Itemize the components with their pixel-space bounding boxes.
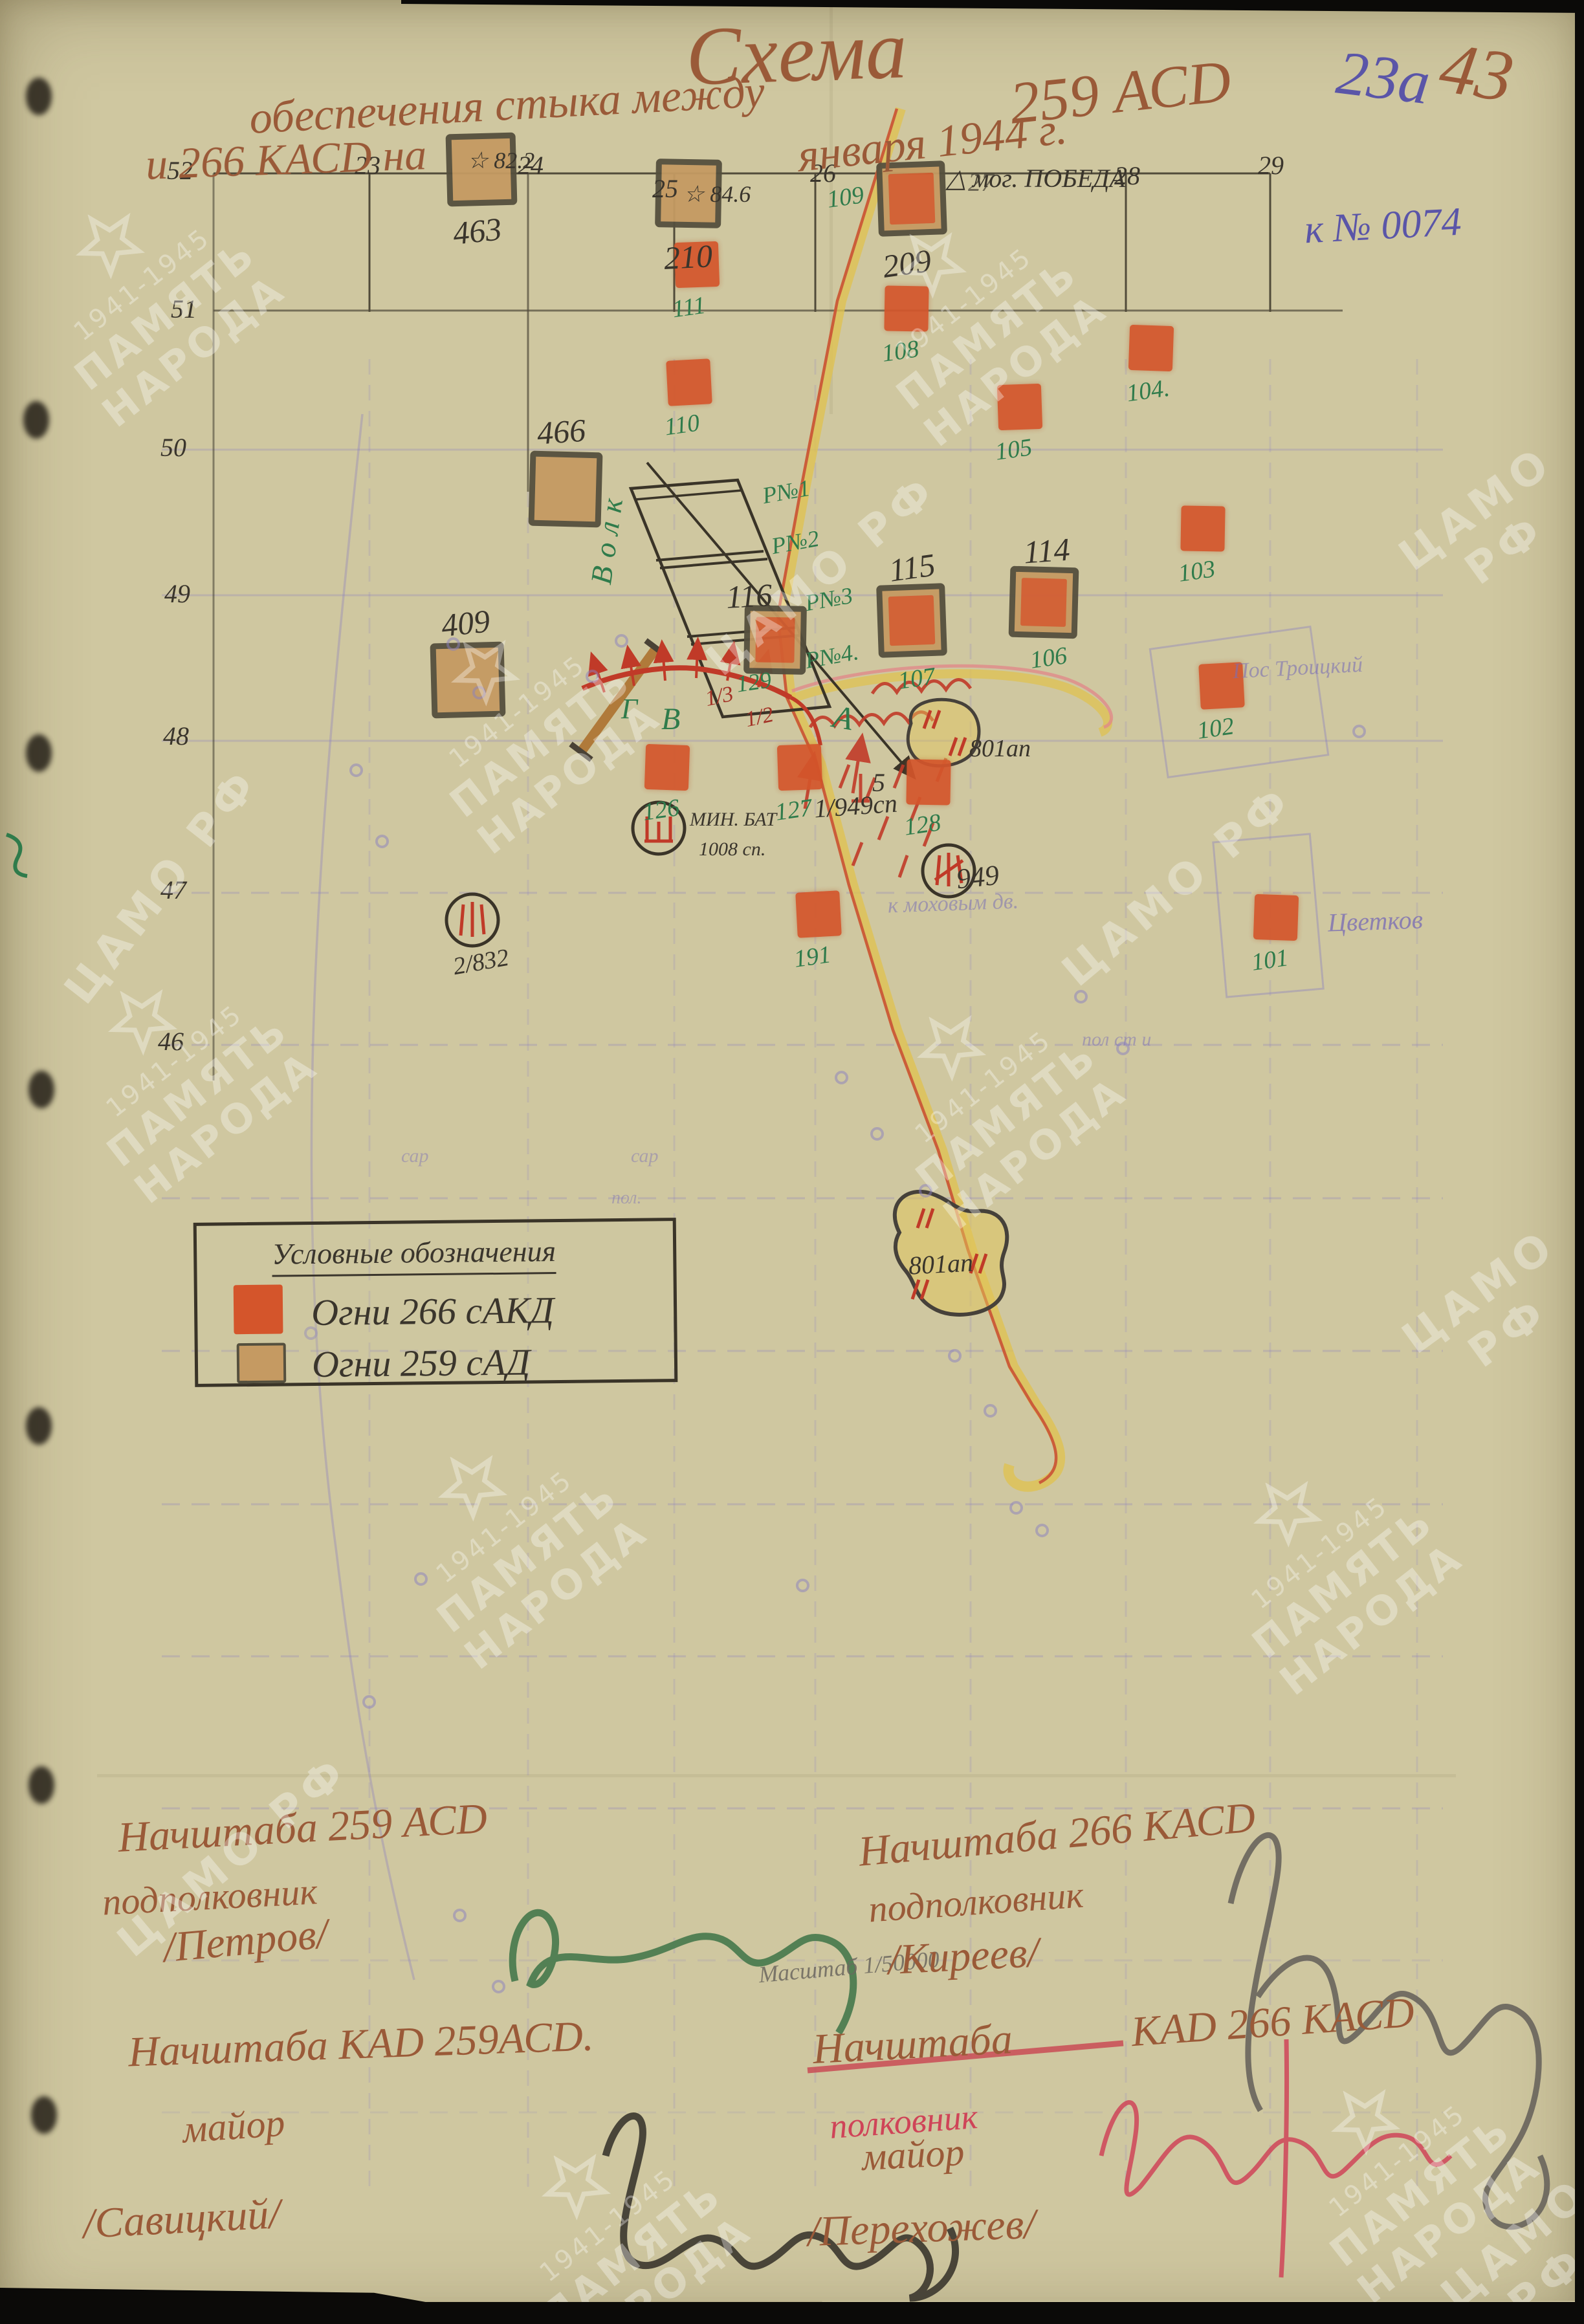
sig2-name: /Киреев/ <box>886 1928 1040 1985</box>
sig4-rank: майор <box>861 2130 965 2180</box>
fire-label-259: 409 <box>440 604 492 642</box>
binder-hole <box>28 1766 54 1804</box>
binder-hole <box>26 78 52 115</box>
pencil-dot <box>615 634 628 648</box>
pencil-dot <box>472 686 486 699</box>
map-label: 129 <box>735 668 773 696</box>
fire-label-259: 115 <box>887 548 938 586</box>
fire-marker-core <box>1020 578 1067 627</box>
legend-title: Условные обозначения <box>272 1234 556 1277</box>
signature-perekhozhev <box>1101 2039 1451 2277</box>
binder-hole <box>26 734 52 772</box>
map-label: сар <box>401 1146 429 1166</box>
fire-label-266: 104. <box>1125 376 1171 406</box>
grid-label: 46 <box>158 1029 184 1055</box>
pencil-dot <box>1116 1042 1130 1055</box>
file-reference: к № 0074 <box>1304 202 1462 250</box>
grid-label: 49 <box>164 581 190 607</box>
pencil-dot <box>984 1404 997 1418</box>
pencil-dot <box>796 1579 809 1592</box>
pencil-dot <box>1035 1524 1049 1537</box>
map-label: МИН. БАТ <box>690 810 776 829</box>
map-label: 1/949сп <box>813 791 898 822</box>
fire-label-266: 102 <box>1196 714 1236 743</box>
fire-marker-266 <box>997 384 1042 430</box>
fire-marker-core <box>888 173 936 225</box>
fire-marker-266 <box>666 358 712 406</box>
pencil-dot <box>919 1184 932 1198</box>
fire-marker-266 <box>1128 325 1174 371</box>
grid-label: 50 <box>160 435 186 461</box>
map-label: к моховым дв. <box>887 890 1018 917</box>
pencil-dot <box>492 1980 505 1993</box>
fire-marker-259 <box>1009 566 1079 639</box>
grid-label: 25 <box>652 176 678 202</box>
unit-circle-symbols <box>461 817 963 937</box>
map-label: 801ап <box>908 1249 974 1278</box>
legend-swatch-266 <box>234 1284 283 1334</box>
pencil-dot <box>375 835 389 848</box>
purple-diagonal-line <box>311 414 414 1980</box>
map-label: 949 <box>955 861 1000 894</box>
fire-label-266: 191 <box>793 942 833 972</box>
fire-marker-266 <box>795 890 842 937</box>
grid-label: 51 <box>171 296 197 322</box>
binder-hole <box>28 1071 54 1108</box>
pencil-dot <box>948 1349 962 1363</box>
pencil-dot <box>1074 990 1088 1003</box>
fire-marker-266 <box>884 285 929 331</box>
map-label: 107 <box>897 664 937 694</box>
grid-label: 48 <box>163 723 189 749</box>
fire-marker-core <box>755 617 795 663</box>
fire-label-266: 105 <box>994 435 1034 465</box>
pencil-dot <box>1352 725 1366 738</box>
grid-label: 29 <box>1258 153 1284 179</box>
pencil-dot <box>586 670 599 683</box>
map-label: Цветков <box>1327 906 1423 936</box>
fire-label-259: 463 <box>452 212 503 250</box>
fire-marker-259 <box>529 451 603 528</box>
pencil-dot <box>362 1695 376 1709</box>
pencil-dot <box>453 1909 467 1922</box>
fire-marker-266 <box>1180 505 1225 551</box>
fire-marker-266 <box>644 744 690 791</box>
map-label: △ мог. ПОБЕДА <box>946 166 1125 192</box>
legend-item-266: Огни 266 сАКД <box>311 1288 555 1334</box>
fire-label-259: 210 <box>663 239 714 274</box>
fire-label-266: 101 <box>1250 945 1290 975</box>
sig3-name: /Савицкий/ <box>82 2189 281 2249</box>
fire-label-259: 116 <box>725 578 773 613</box>
fire-marker-266 <box>777 744 822 791</box>
scanned-map-page: 111108110104.105103102126127128191101463… <box>0 0 1584 2324</box>
pencil-dot <box>446 637 460 651</box>
pencil-dot <box>1009 1501 1023 1515</box>
scan-edge-bottom <box>0 2302 1584 2324</box>
fire-label-266: 103 <box>1177 556 1217 586</box>
fire-label-259: 209 <box>881 244 933 283</box>
sig4-role-struck: Начштаба <box>811 2015 1013 2074</box>
fire-label-259: 114 <box>1022 533 1071 569</box>
fire-label-259: 466 <box>536 413 586 449</box>
fire-label-266: 126 <box>641 795 681 825</box>
sig4-name: /Перехожев/ <box>807 2200 1037 2257</box>
legend-item-259: Огни 259 сАД <box>312 1340 531 1386</box>
pencil-dot <box>414 1572 428 1586</box>
legend: Условные обозначения Огни 266 сАКД Огни … <box>193 1218 678 1387</box>
corner-number-ink: 23а <box>1334 41 1434 115</box>
fire-marker-259 <box>430 642 506 719</box>
fire-marker-259 <box>876 583 947 658</box>
sig3-rank: майор <box>181 2101 287 2153</box>
map-label: 106 <box>1029 643 1069 673</box>
pencil-dot <box>349 763 363 777</box>
map-label: сар <box>631 1146 659 1166</box>
fire-label-266: 127 <box>774 795 814 825</box>
fire-label-266: 111 <box>671 293 707 322</box>
fire-marker-266 <box>1253 894 1299 941</box>
legend-swatch-259 <box>237 1343 287 1383</box>
binder-hole <box>31 2096 57 2134</box>
grid-label: 47 <box>160 877 186 903</box>
map-label: пол. <box>611 1189 642 1207</box>
scan-edge-right <box>1575 0 1584 2324</box>
map-label: В <box>661 704 680 735</box>
binder-hole <box>26 1407 52 1445</box>
fire-label-266: 128 <box>903 810 943 840</box>
fire-label-266: 110 <box>663 410 701 439</box>
map-label: ☆ 84.6 <box>683 182 751 206</box>
pencil-dot <box>870 1127 884 1141</box>
binder-hole <box>23 401 49 439</box>
fire-label-266: 108 <box>881 336 921 366</box>
fire-marker-core <box>888 595 936 646</box>
map-label: 801ап <box>969 736 1031 761</box>
pencil-dot <box>835 1071 848 1084</box>
margin-mark <box>6 835 27 876</box>
map-label: 109 <box>826 182 866 212</box>
map-label: Г <box>621 695 637 723</box>
map-title-line3: и 266 КАСD на <box>145 132 427 186</box>
fire-marker-266 <box>906 759 951 805</box>
map-label: ☆ 82.2 <box>467 149 534 172</box>
map-label: 1008 сп. <box>699 840 765 859</box>
fire-marker-259 <box>743 605 807 675</box>
corner-number-pencil: 43 <box>1435 31 1518 114</box>
